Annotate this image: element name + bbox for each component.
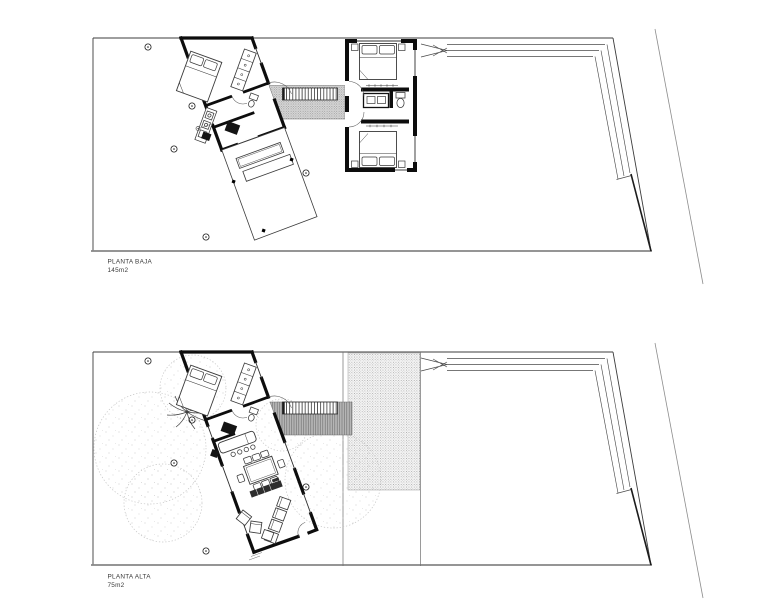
plan-sheet: PLANTA BAJA 145m2	[0, 0, 768, 614]
plan-area: 75m2	[108, 582, 125, 589]
floor-plan-drawing: PLANTA BAJA 145m2	[0, 0, 768, 614]
entry-steps	[249, 553, 262, 561]
plan-title: PLANTA BAJA	[108, 259, 153, 266]
plan-area: 145m2	[108, 267, 129, 274]
plan-planta-baja: PLANTA BAJA 145m2	[91, 29, 703, 284]
guest-pavilion	[345, 39, 417, 172]
plan-planta-alta: PLANTA ALTA 75m2	[91, 343, 703, 598]
door-swing	[298, 522, 305, 536]
plan-title: PLANTA ALTA	[108, 574, 152, 581]
toilet	[396, 93, 405, 108]
lounge-chairs	[236, 510, 274, 541]
